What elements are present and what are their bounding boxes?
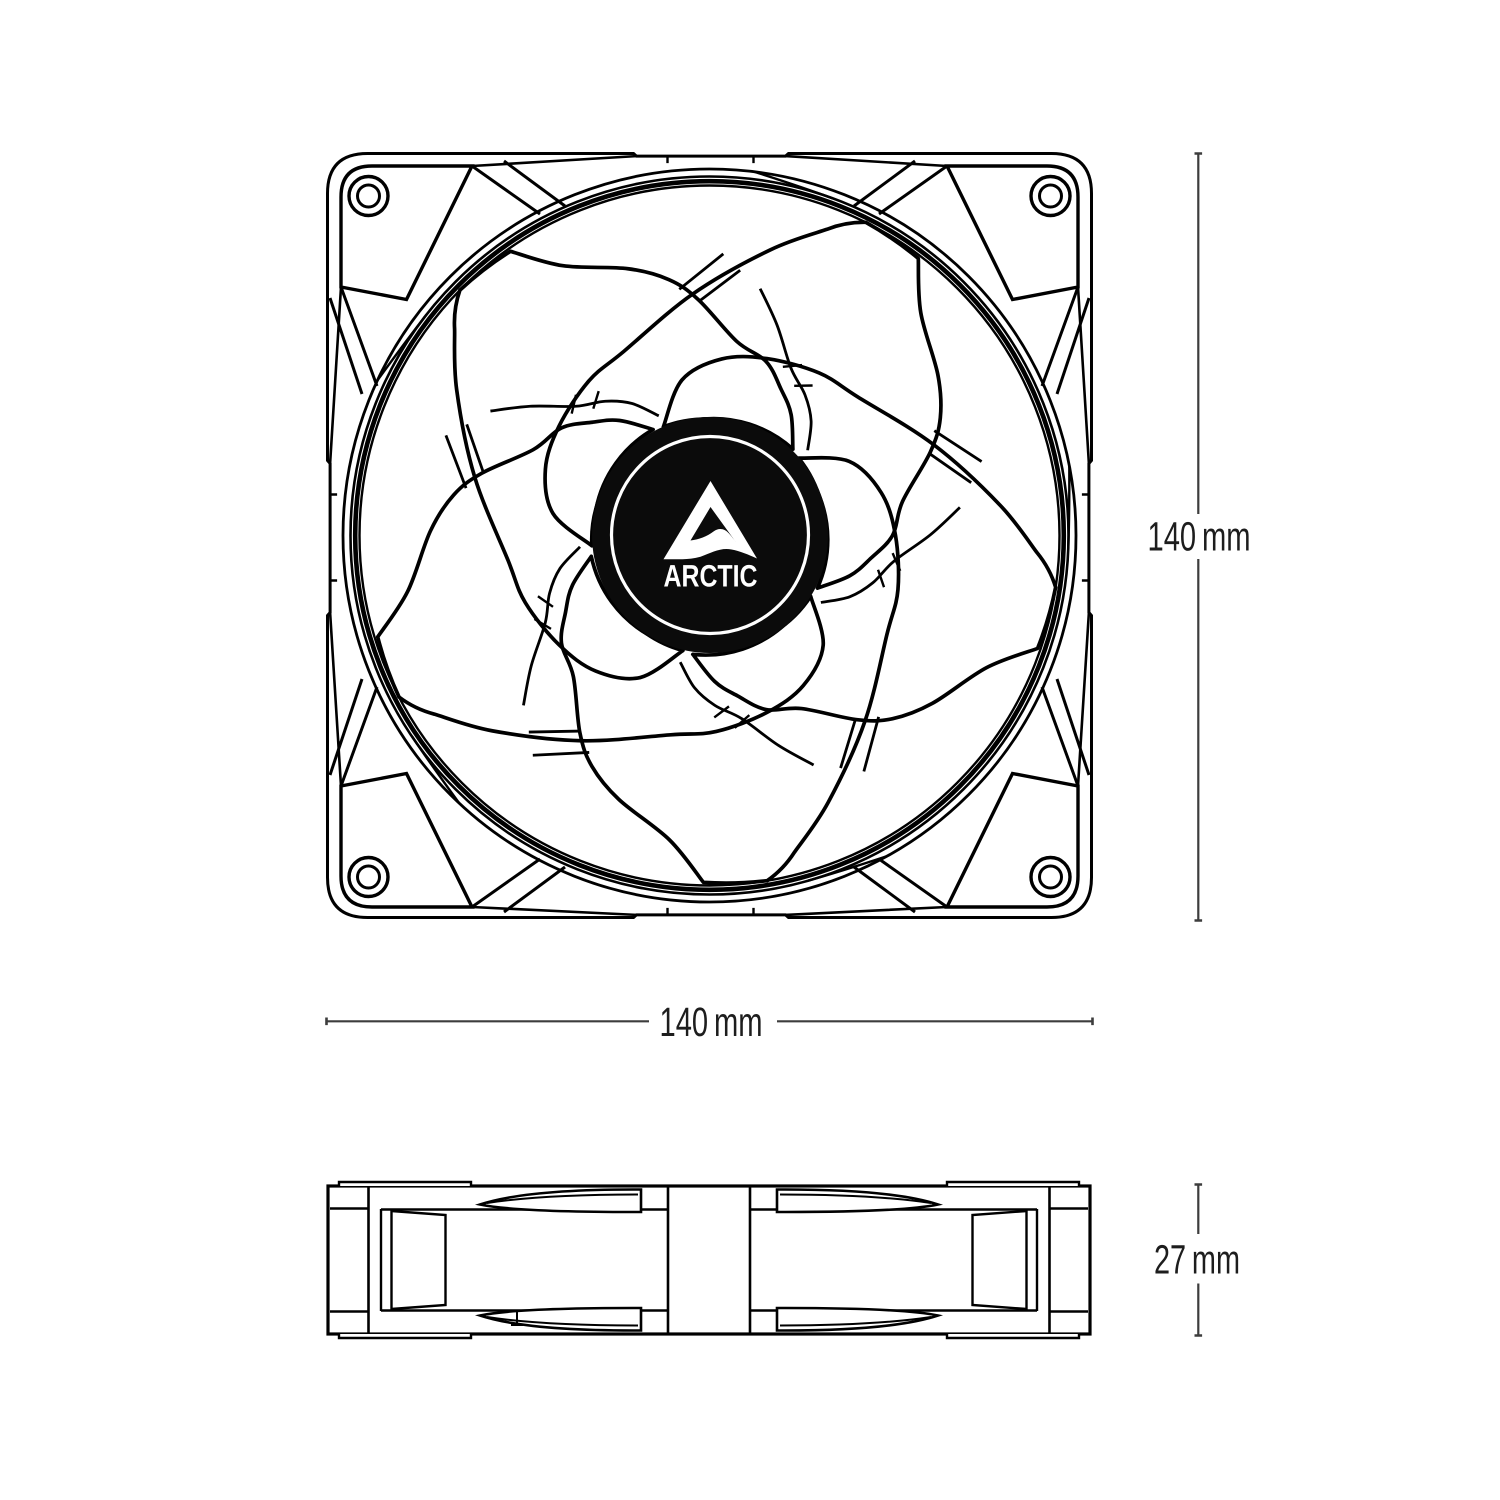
svg-text:ARCTIC: ARCTIC [664, 559, 758, 594]
svg-text:27 mm: 27 mm [1154, 1236, 1240, 1282]
svg-text:140 mm: 140 mm [1148, 514, 1251, 560]
svg-text:140 mm: 140 mm [660, 999, 763, 1045]
